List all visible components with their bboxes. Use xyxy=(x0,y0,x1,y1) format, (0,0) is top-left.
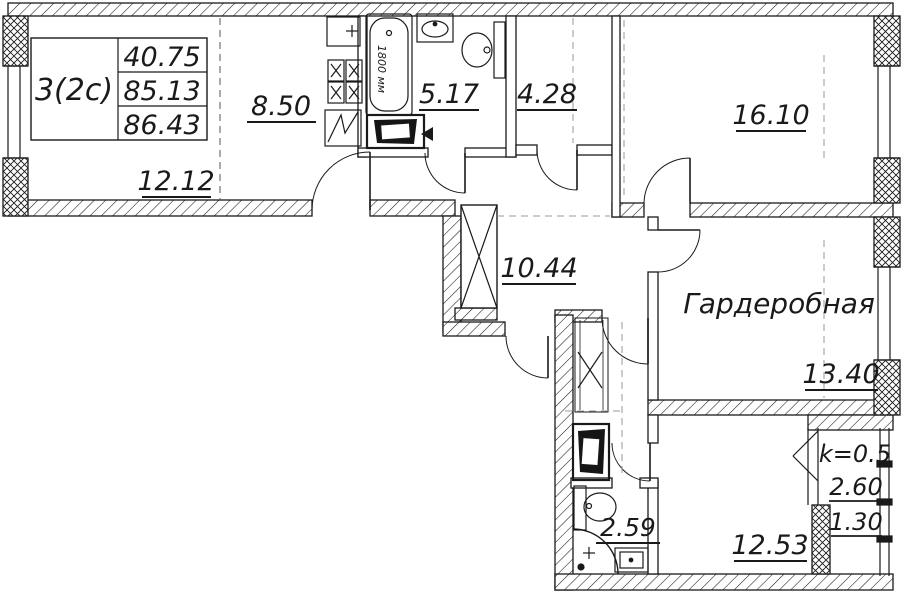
wall-bath-hall xyxy=(506,16,516,157)
wall-bedroom1-bottom-b xyxy=(690,203,893,217)
pier-right-3 xyxy=(874,217,900,267)
pier-left-top xyxy=(3,16,28,66)
label-wardrobe-name: Гардеробная xyxy=(683,287,875,320)
label-kitchen-area: 8.50 xyxy=(251,91,311,122)
unit-type-label: 3(2c) xyxy=(35,73,113,108)
door-bedroom1 xyxy=(644,158,690,203)
window-bedroom2-balcony xyxy=(793,428,818,505)
wall-wardrobe-bottom xyxy=(648,400,893,415)
washing-machine-2-icon xyxy=(573,424,609,480)
window-living-left xyxy=(3,66,28,158)
pier-balcony xyxy=(812,505,830,574)
wall-wc-top-b xyxy=(640,478,658,488)
fridge-icon xyxy=(325,110,361,146)
unit-apartment-area: 85.13 xyxy=(123,76,200,107)
washing-machine-icon xyxy=(367,115,424,148)
bath-sink-icon xyxy=(417,14,453,42)
floor-plan-page: 3(2c) 40.75 85.13 86.43 12.12 8.50 5.17 … xyxy=(0,0,911,600)
wall-wardrobe-left-a xyxy=(648,217,658,230)
closet-icon xyxy=(575,318,608,412)
doors xyxy=(312,127,700,481)
wall-hall-bottom-a xyxy=(516,145,537,155)
label-bathroom-area: 5.17 xyxy=(419,79,479,110)
label-corridor-area: 10.44 xyxy=(500,253,577,284)
bathtub-icon xyxy=(366,14,412,115)
wc-basin-icon xyxy=(615,548,648,572)
wall-strip-bottom-left xyxy=(8,200,312,216)
unit-living-area: 40.75 xyxy=(123,42,200,73)
window-wardrobe-right xyxy=(874,267,900,360)
pier-left-bottom xyxy=(3,158,28,216)
label-wardrobe-area: 13.40 xyxy=(802,359,879,390)
wall-entry xyxy=(443,322,505,336)
wall-lower-left xyxy=(555,315,573,590)
wall-bedroom2-left-a xyxy=(648,415,658,443)
door-wardrobe xyxy=(658,230,700,272)
label-bedroom2-area: 12.53 xyxy=(731,530,808,561)
vent-shaft-icon xyxy=(461,205,497,308)
label-bathtub-length: 1800 мм xyxy=(375,45,388,93)
wall-hall-bedroom1 xyxy=(612,16,620,217)
wall-wardrobe-left-b xyxy=(648,272,658,400)
floor-plan-canvas: 3(2c) 40.75 85.13 86.43 12.12 8.50 5.17 … xyxy=(0,0,911,600)
door-swing-arrow xyxy=(421,127,433,141)
wall-balcony-top xyxy=(808,415,893,430)
pier-right-1 xyxy=(874,16,900,66)
wall-bottom xyxy=(555,574,893,590)
kitchen-sink-icon xyxy=(327,17,360,46)
fixtures xyxy=(325,14,648,574)
door-bedroom2 xyxy=(612,443,650,481)
unit-total-area: 86.43 xyxy=(123,110,200,141)
label-balcony-area: 2.60 xyxy=(829,473,882,501)
window-bedroom1-right xyxy=(874,66,900,158)
label-bedroom1-area: 16.10 xyxy=(732,100,809,131)
label-balcony-k: k=0.5 xyxy=(819,440,891,468)
label-wc-area: 2.59 xyxy=(600,513,656,542)
door-kitchen xyxy=(312,152,370,210)
wall-strip-bottom-right xyxy=(370,200,455,216)
door-hall xyxy=(537,150,577,190)
wall-below-shaft xyxy=(455,308,497,320)
label-balcony-reduced: 1.30 xyxy=(829,508,882,536)
stove-icon xyxy=(328,60,362,103)
door-bathroom xyxy=(425,153,465,193)
partition-walls xyxy=(358,16,658,574)
unit-info-table: 3(2c) 40.75 85.13 86.43 xyxy=(31,38,207,141)
label-living-area: 12.12 xyxy=(137,166,214,197)
door-entry xyxy=(506,336,548,378)
door-lower-corridor xyxy=(602,318,648,364)
wall-hall-bottom-b xyxy=(577,145,612,155)
label-hall-area: 4.28 xyxy=(517,79,577,110)
toilet-icon xyxy=(462,22,505,78)
pier-right-2 xyxy=(874,158,900,203)
